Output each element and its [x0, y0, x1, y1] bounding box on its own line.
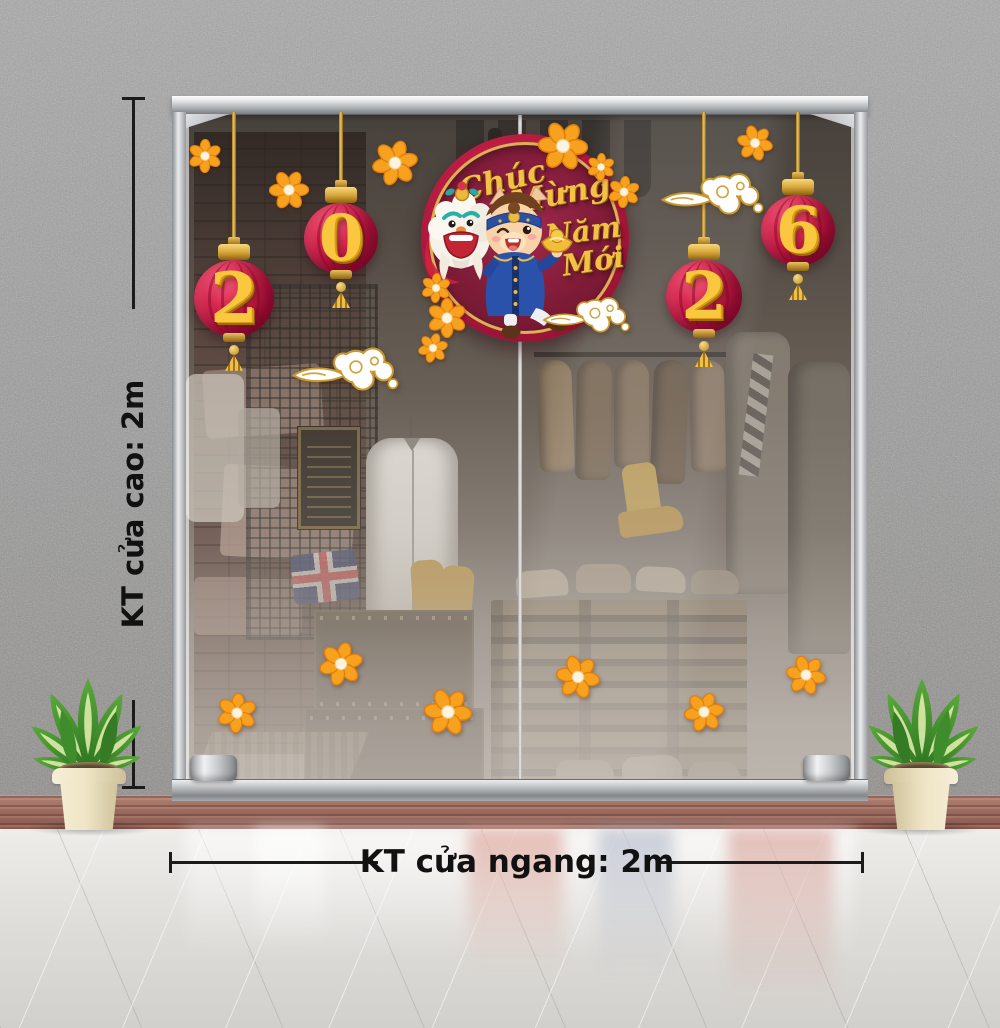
plant-pot [889, 782, 953, 832]
door-width-dimension-label: KT cửa ngang: 2m [360, 844, 675, 880]
width-dimension-cap [861, 852, 864, 873]
door-bottom-rail [172, 779, 868, 801]
width-dimension-line [656, 861, 863, 864]
plant-pot [884, 768, 958, 784]
potted-plant-right [842, 622, 1000, 834]
door-header-bar [172, 96, 868, 115]
mockup-stage: Chúc Mừng Năm Mới [0, 0, 1000, 1028]
height-dimension-cap [122, 97, 145, 100]
glass-edge-highlight [186, 112, 189, 779]
floor-reflection-streak [255, 829, 325, 949]
plant-pot [52, 768, 126, 784]
plant-pot [57, 782, 121, 832]
door-side-rail-left [172, 112, 186, 800]
width-dimension-cap [169, 852, 172, 873]
floor-reflection-streak [728, 829, 833, 1004]
width-dimension-line [170, 861, 378, 864]
door-height-dimension-label: KT cửa cao: 2m [116, 380, 150, 629]
plant-leaves-icon [8, 626, 168, 778]
potted-plant-left [8, 622, 168, 834]
plant-leaves-icon [842, 626, 1000, 778]
door-pivot-fitting-left[interactable] [190, 755, 237, 781]
height-dimension-line [132, 99, 135, 309]
door-center-divider [518, 112, 522, 779]
glass-door-panels[interactable] [186, 112, 854, 779]
